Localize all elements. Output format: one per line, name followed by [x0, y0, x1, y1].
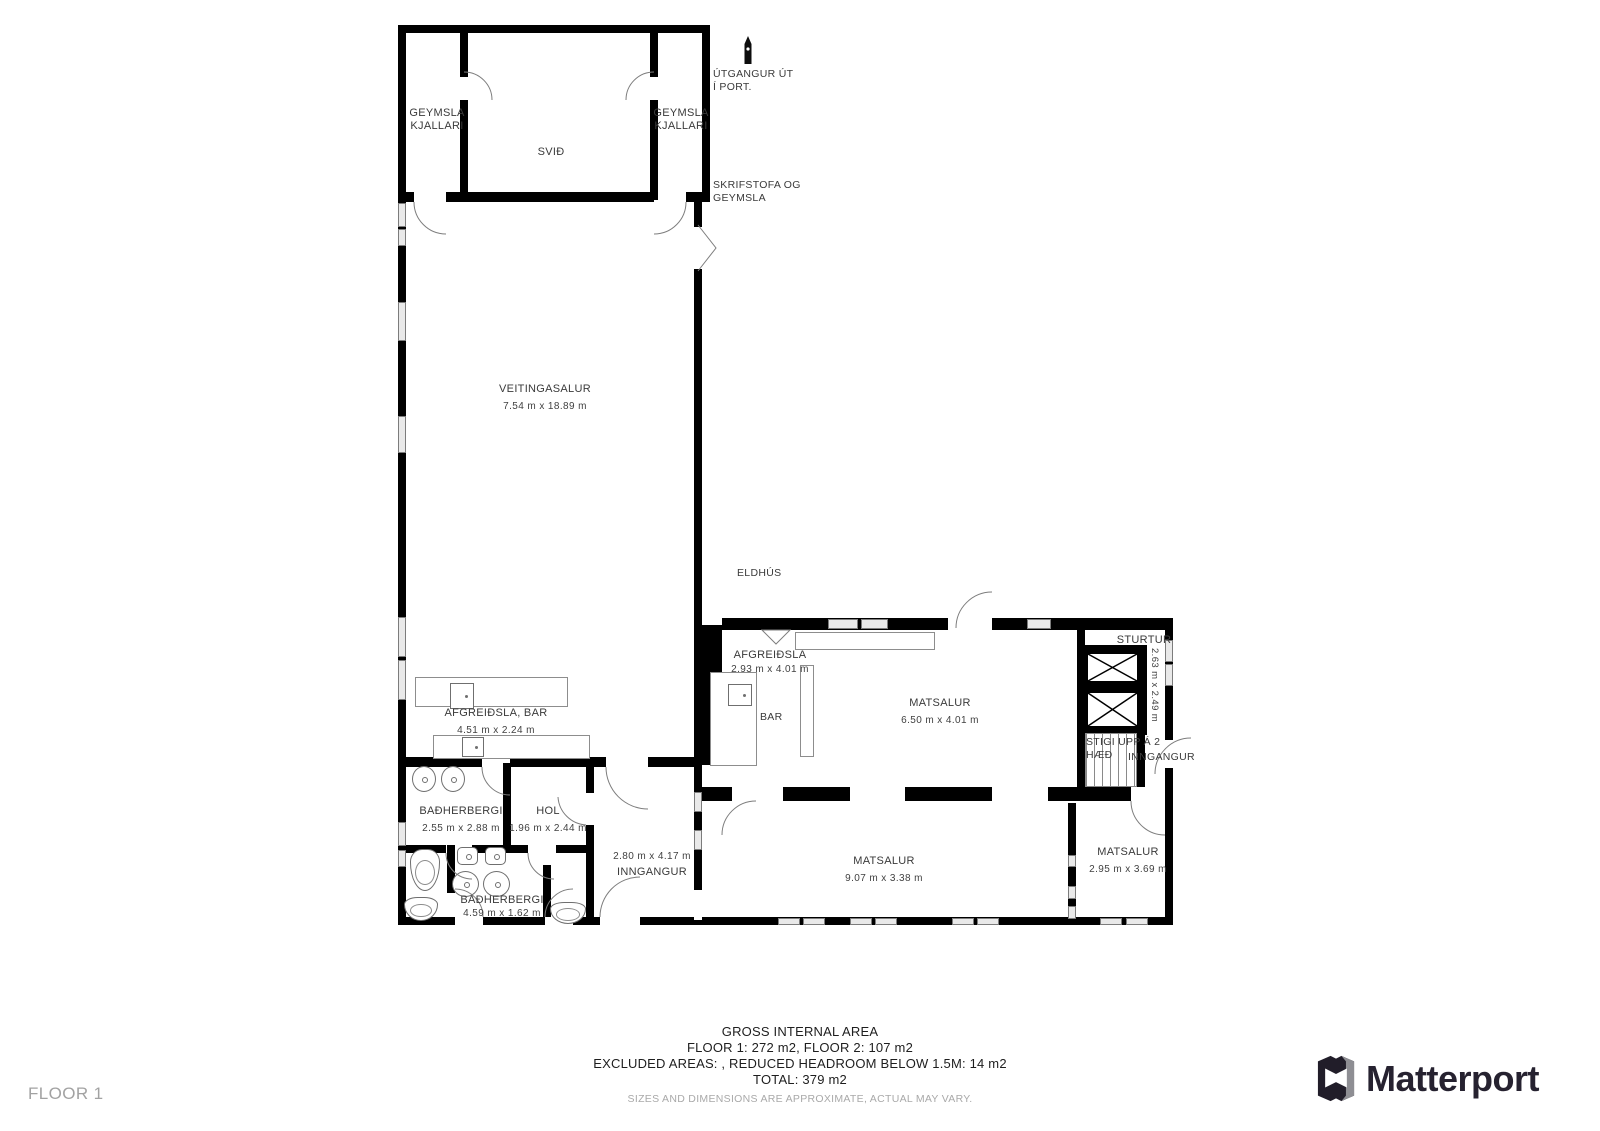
wall-segment [543, 865, 551, 925]
label-skrifstofa: SKRIFSTOFA OG GEYMSLA [713, 179, 801, 205]
label-svid: SVIÐ [538, 146, 565, 159]
room-matsalur-2: MATSALUR 9.07 m x 3.38 m [845, 855, 923, 885]
matterport-wordmark: Matterport [1366, 1058, 1539, 1100]
wall-segment [1140, 645, 1147, 735]
window [952, 918, 974, 925]
toilet [410, 849, 440, 891]
sink [457, 847, 478, 865]
summary-title: GROSS INTERNAL AREA [500, 1024, 1100, 1040]
sink [412, 766, 436, 792]
summary-disclaimer: SIZES AND DIMENSIONS ARE APPROXIMATE, AC… [500, 1091, 1100, 1107]
summary-excluded: EXCLUDED AREAS: , REDUCED HEADROOM BELOW… [500, 1056, 1100, 1072]
elevator-shaft [1085, 651, 1140, 684]
elevator-shaft [1085, 690, 1140, 729]
window [1068, 855, 1076, 867]
counter [433, 735, 590, 759]
window [398, 416, 406, 453]
wall-segment [1048, 787, 1131, 801]
window [1165, 664, 1173, 686]
window [828, 619, 858, 629]
door-opening [586, 793, 594, 825]
room-matsalur-3: MATSALUR 2.95 m x 3.69 m [1089, 846, 1167, 876]
window [1068, 886, 1076, 899]
door-opening [600, 917, 640, 925]
window [850, 918, 872, 925]
window [694, 830, 702, 850]
room-veitingasalur: VEITINGASALUR 7.54 m x 18.89 m [499, 383, 591, 413]
area-summary: GROSS INTERNAL AREA FLOOR 1: 272 m2, FLO… [500, 1024, 1100, 1107]
counter [800, 665, 814, 757]
window [875, 918, 897, 925]
door-opening [948, 618, 992, 630]
sink-unit [728, 684, 752, 706]
room-inngangur-main: 2.80 m x 4.17 m INNGANGUR [613, 850, 691, 879]
matterport-brand: Matterport [1316, 1055, 1539, 1102]
floor-selector-label[interactable]: FLOOR 1 [28, 1084, 104, 1104]
wall-segment [783, 787, 850, 801]
room-afgreidsla-bar: AFGREIÐSLA, BAR 4.51 m x 2.24 m [445, 707, 548, 737]
window [398, 302, 406, 341]
window [1027, 619, 1051, 629]
sink [441, 766, 465, 792]
window [1126, 918, 1148, 925]
label-geymsla-kjallari-left: GEYMSLA KJALLARI [409, 107, 464, 133]
label-geymsla-kjallari-right: GEYMSLA KJALLARI [653, 107, 708, 133]
room-sturtur-dims: 2.63 m x 2.49 m [1149, 648, 1160, 722]
summary-floors: FLOOR 1: 272 m2, FLOOR 2: 107 m2 [500, 1040, 1100, 1056]
wall-segment [586, 763, 594, 925]
window [694, 792, 702, 812]
wall-segment [694, 269, 702, 625]
door-arcs-overlay [0, 0, 1600, 1131]
window [977, 918, 999, 925]
wall-segment [460, 33, 468, 77]
room-matsalur-1: MATSALUR 6.50 m x 4.01 m [901, 697, 979, 727]
room-afgreidsla: AFGREIÐSLA 2.93 m x 4.01 m [731, 649, 809, 676]
window [1100, 918, 1122, 925]
counter [795, 632, 935, 650]
door-opening [1131, 787, 1165, 801]
window [398, 617, 406, 657]
window [803, 918, 825, 925]
wall-segment [905, 787, 992, 801]
label-bar: BAR [760, 711, 783, 724]
wall-segment [648, 757, 694, 767]
wall-segment [398, 25, 710, 33]
label-utgangur: ÚTGANGUR ÚT Í PORT. [713, 68, 793, 94]
window [398, 203, 406, 227]
wall-notch [762, 630, 790, 644]
room-badherbergi-2: BAÐHERBERGI 4.59 m x 1.62 m [460, 894, 543, 920]
room-hol: HOL 1.96 m x 2.44 m [509, 805, 587, 835]
room-badherbergi-1: BAÐHERBERGI 2.55 m x 2.88 m [419, 805, 502, 835]
sink-unit [450, 683, 474, 709]
window [398, 822, 406, 846]
sink-unit [462, 737, 484, 757]
wall-segment [694, 200, 702, 227]
door-opening [694, 890, 702, 920]
wall-segment [398, 25, 406, 200]
counter [415, 677, 568, 707]
room-sturtur: STURTUR [1117, 634, 1171, 647]
label-eldhus: ELDHÚS [737, 567, 781, 580]
window [778, 918, 800, 925]
wall-segment [446, 192, 654, 202]
wall-segment [650, 33, 658, 77]
window [398, 850, 406, 867]
floorplan-page: GEYMSLA KJALLARI SVIÐ GEYMSLA KJALLARI Ú… [0, 0, 1600, 1131]
matterport-logo-icon [1316, 1055, 1356, 1102]
wall-segment [1077, 628, 1085, 790]
wall-segment [556, 845, 588, 853]
north-marker-icon [742, 36, 754, 64]
label-inngangur-entry: INNGANGUR [1128, 751, 1195, 764]
summary-total: TOTAL: 379 m2 [500, 1072, 1100, 1088]
window [861, 619, 888, 629]
window [1068, 906, 1076, 919]
window [398, 660, 406, 700]
sink [485, 847, 506, 865]
window [398, 229, 406, 246]
